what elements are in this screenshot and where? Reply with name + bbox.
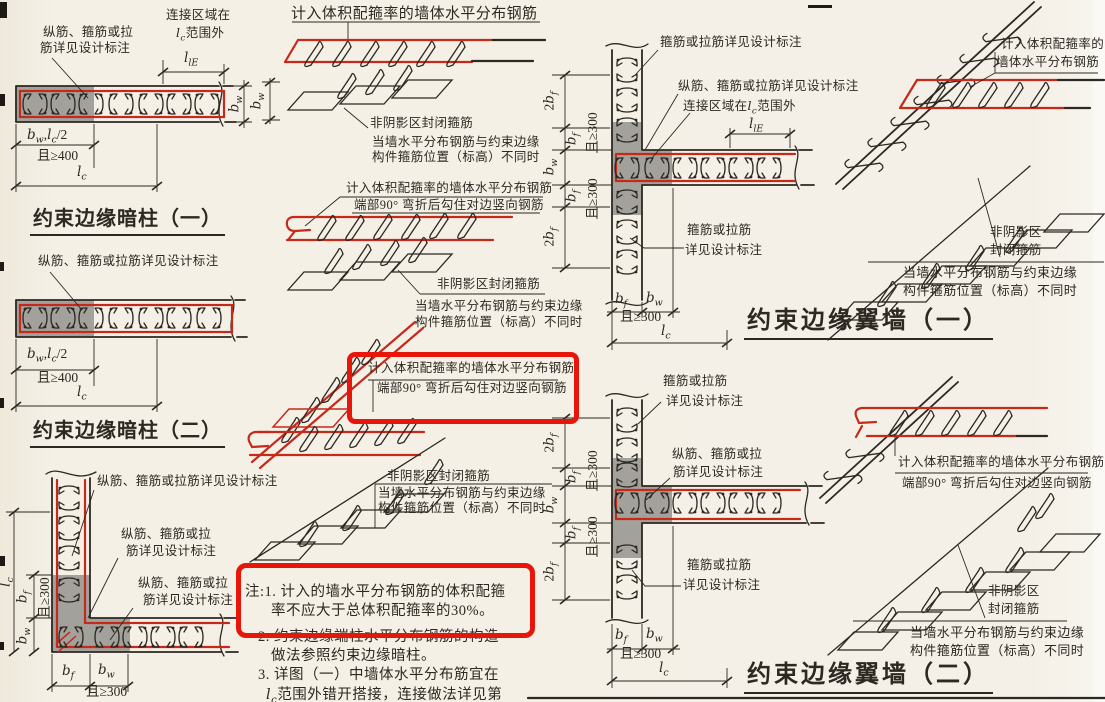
r1-nonshade-line2: 封闭箍筋 [990,243,1042,258]
t1-stirrup2-line2: 详见设计标注 [685,243,762,258]
note-1-line1: 注:1. 计入的墙水平分布钢筋的体积配箍 [245,584,506,601]
t1-dim-ge300-top: 且≥300 [585,112,601,153]
t1-stirrup-note: 箍筋或拉筋详见设计标注 [660,35,802,50]
r1-when-line1: 当墙水平分布钢筋与约束边缘 [903,265,1077,281]
t2-dim-bf-bottom: bf [615,627,627,646]
d2-dim-lc: lc [77,384,87,403]
t2-stirrup-line2: 详见设计标注 [666,394,743,409]
sketch1-linework [262,22,545,128]
lcol-dim-bw-bottom: bw [98,662,115,681]
r2-hook-note: 端部90° 弯折后勾住对边竖向钢筋 [902,476,1092,491]
r1-vol-line1: 计入体积配箍率的 [1001,37,1104,52]
d2-dim-ge400: 且≥400 [37,370,78,386]
note-1-line2: 率不应大于总体积配箍率的30%。 [271,603,494,620]
t2-dim-bw: bw [541,497,560,514]
title-yiqiang1: 约束边缘翼墙（一） [744,300,993,340]
drawing-sheet: 纵筋、箍筋或拉 筋详见设计标注 连接区域在 lc范围外 llE bw,lc/2 … [0,0,1105,702]
s2-when-line1: 当墙水平分布钢筋与约束边缘 [415,299,583,314]
note-3-line2: lc范围外错开搭接，连接做法详见第 [266,687,502,702]
lcol-dim-lc: lc [0,577,17,587]
t1-dim-bf-bot: bf [563,190,582,202]
s2-hook-note: 端部90° 弯折后勾住对边竖向钢筋 [354,198,544,213]
t2-dim-bf-bot: bf [563,527,582,539]
s2-nonshade-note: 非阴影区封闭箍筋 [437,277,540,292]
t2-dim-ge300-top: 且≥300 [585,450,601,491]
d2-dim-bw-lc2: bw,lc/2 [27,346,67,365]
t2-dim-2bf-top: 2bf [541,434,560,453]
t1-connect-note: 连接区域在lc范围外 [683,98,796,117]
lcol-dim-bf-bottom: bf [62,663,74,682]
box1-hook-note: 端部90° 弯折后勾住对边竖向钢筋 [377,381,567,396]
lcol-rebar-note-c2: 筋详见设计标注 [143,593,233,608]
d1-connect-note-line1: 连接区域在 [166,8,231,23]
r2-nonshade-line2: 封闭箍筋 [988,602,1040,617]
title-anzhu2: 约束边缘暗柱（二） [30,414,225,448]
lcol-rebar-note-b2: 筋详见设计标注 [126,544,216,559]
title-anzhu1: 约束边缘暗柱（一） [30,202,225,236]
d1-rebar-note-line1: 纵筋、箍筋或拉 [43,25,133,40]
s2-when-line2: 构件箍筋位置（标高）不同时 [415,315,583,330]
d1-dim-lle: llE [184,50,198,69]
r2-vol-note: 计入体积配箍率的墙体水平分布钢筋 [898,455,1104,470]
s4-when-line1: 当墙水平分布钢筋与约束边缘 [378,486,546,501]
t1-dim-2bf-top: 2bf [541,92,560,111]
lcol-rebar-note-c1: 纵筋、箍筋或拉 [138,576,228,591]
t1-rebar-note: 纵筋、箍筋或拉筋详见设计标注 [678,79,859,94]
lcol-dim-ge300-left: 且≥300 [37,577,53,618]
t1-dim-ge300-bot: 且≥300 [585,178,601,219]
r2-when-line2: 构件箍筋位置（标高）不同时 [910,643,1084,659]
right-sketch2-linework [820,377,1100,655]
t2-stirrup2-line1: 箍筋或拉筋 [687,558,752,573]
t2-dim-ge300-bottom: 且≥300 [620,646,661,662]
r1-nonshade-line1: 非阴影区 [990,225,1042,240]
t1-dim-bf-top: bf [563,133,582,145]
lcol-rebar-note-a: 纵筋、箍筋或拉筋详见设计标注 [97,474,278,489]
lcol-dim-bf-left: bf [14,591,33,603]
anzhu1-plan-linework [11,58,252,192]
note-2-line1: 2. 约束边缘端柱水平分布钢筋的构造 [258,629,499,646]
d1-dim-ge400: 且≥400 [37,148,78,164]
d1-dim-lc: lc [77,164,87,183]
s1-when-line2: 构件箍筋位置（标高）不同时 [372,150,540,165]
t1-dim-bw-bottom: bw [646,290,663,309]
anzhu2-plan-linework [11,272,247,412]
t2-dim-lc: lc [659,660,669,679]
d1-dim-bw-lc2: bw,lc/2 [27,127,67,146]
lcol-rebar-note-b1: 纵筋、箍筋或拉 [121,527,211,542]
s4-when-line2: 构件箍筋位置（标高）不同时 [378,501,546,516]
s1-nonshade-note: 非阴影区封闭箍筋 [370,116,473,131]
s2-vol-note: 计入体积配箍率的墙体水平分布钢筋 [346,181,552,196]
box1-vol-note: 计入体积配箍率的墙体水平分布钢筋 [368,361,574,376]
note-2-line2: 做法参照约束边缘暗柱。 [271,648,436,665]
title-yiqiang2: 约束边缘翼墙（二） [744,654,993,694]
t1-dim-bf-bottom: bf [615,291,627,310]
t1-stirrup2-line1: 箍筋或拉筋 [687,223,752,238]
r1-vol-line2: 墙体水平分布钢筋 [996,55,1099,70]
d1-rebar-note-line2: 筋详见设计标注 [40,41,130,56]
t2-rebar-line1: 纵筋、箍筋或拉 [672,447,762,462]
d1-dim-bw: bw [226,96,245,113]
lcol-dim-ge300-bottom: 且≥300 [86,684,127,700]
d1-connect-note-line2: lc范围外 [176,25,224,44]
r1-when-line2: 构件箍筋位置（标高）不同时 [903,283,1077,299]
s1-when-line1: 当墙水平分布钢筋与约束边缘 [372,135,540,150]
s1-vol-note: 计入体积配箍率的墙体水平分布钢筋 [291,5,537,23]
t2-dim-2bf-bot: 2bf [541,563,560,582]
t2-stirrup2-line2: 详见设计标注 [683,578,760,593]
s4-nonshade-note: 非阴影区封闭箍筋 [387,469,490,484]
t2-dim-ge300-bot: 且≥300 [585,516,601,557]
t2-dim-bf-top: bf [563,471,582,483]
t1-dim-lc: lc [661,323,671,342]
d2-rebar-note: 纵筋、箍筋或拉筋详见设计标注 [38,254,219,269]
r2-nonshade-line1: 非阴影区 [988,584,1040,599]
t1-dim-ge300-bottom: 且≥300 [620,309,661,325]
t1-dim-2bf-bot: 2bf [541,228,560,247]
t1-dim-lle: llE [749,116,763,135]
note-3-line1: 3. 详图（一）中墙体水平分布筋宜在 [258,667,499,684]
s1-dim-bw: bw [248,93,267,110]
r2-when-line1: 当墙水平分布钢筋与约束边缘 [910,625,1084,641]
t2-dim-bw-bottom: bw [646,626,663,645]
t2-rebar-line2: 筋详见设计标注 [673,465,763,480]
t1-dim-bw: bw [541,159,560,176]
t2-stirrup-line1: 箍筋或拉筋 [663,374,728,389]
lcol-dim-bw-left: bw [14,628,33,645]
